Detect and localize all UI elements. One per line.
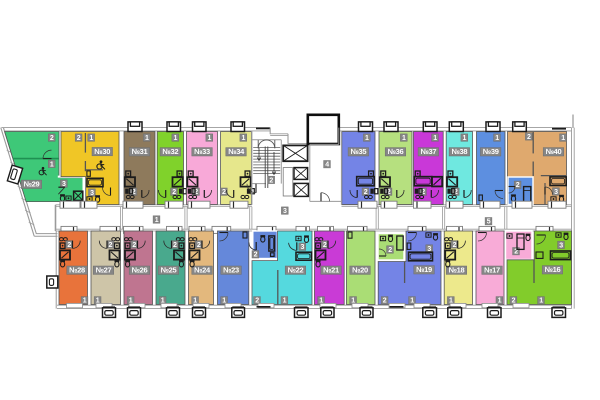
svg-text:№18: №18 (449, 266, 465, 275)
svg-text:1: 1 (402, 135, 406, 142)
svg-text:№39: №39 (483, 147, 499, 156)
svg-text:2: 2 (222, 189, 226, 196)
svg-text:2: 2 (383, 298, 387, 305)
svg-text:3: 3 (554, 189, 558, 196)
svg-text:1: 1 (155, 217, 159, 224)
svg-text:2: 2 (516, 182, 520, 189)
svg-text:2: 2 (109, 242, 113, 249)
svg-text:№22: №22 (288, 266, 304, 275)
svg-text:3: 3 (301, 244, 305, 251)
svg-text:1: 1 (283, 298, 287, 305)
svg-text:1: 1 (463, 135, 467, 142)
svg-text:1: 1 (174, 135, 178, 142)
svg-text:2: 2 (254, 252, 258, 259)
svg-text:№29: №29 (24, 180, 40, 189)
svg-text:№31: №31 (132, 147, 148, 156)
svg-text:2: 2 (173, 242, 177, 249)
svg-text:№17: №17 (484, 266, 500, 275)
svg-text:№40: №40 (546, 147, 562, 156)
svg-text:2: 2 (388, 247, 392, 254)
svg-text:1: 1 (50, 161, 54, 168)
svg-text:2: 2 (269, 177, 273, 184)
svg-text:№24: №24 (194, 266, 211, 275)
svg-text:№33: №33 (194, 147, 210, 156)
svg-text:1: 1 (539, 298, 543, 305)
svg-text:1: 1 (433, 135, 437, 142)
svg-text:5: 5 (487, 219, 491, 226)
svg-text:№21: №21 (323, 266, 339, 275)
svg-text:№16: №16 (545, 265, 561, 274)
svg-text:2: 2 (323, 242, 327, 249)
svg-text:3: 3 (283, 208, 287, 215)
svg-text:1: 1 (495, 135, 499, 142)
svg-text:2: 2 (197, 242, 201, 249)
svg-text:1: 1 (561, 135, 565, 142)
svg-text:2: 2 (77, 135, 81, 142)
svg-text:№23: №23 (223, 266, 239, 275)
svg-text:№26: №26 (132, 266, 148, 275)
svg-text:№19: №19 (416, 265, 432, 274)
svg-text:2: 2 (50, 135, 54, 142)
svg-text:№25: №25 (161, 266, 177, 275)
svg-text:1: 1 (242, 135, 246, 142)
svg-text:№20: №20 (352, 266, 368, 275)
svg-text:1: 1 (208, 135, 212, 142)
svg-text:2: 2 (67, 242, 71, 249)
svg-text:1: 1 (83, 298, 87, 305)
svg-text:4: 4 (325, 162, 329, 169)
svg-text:2: 2 (132, 242, 136, 249)
svg-text:№36: №36 (388, 147, 404, 156)
svg-text:2: 2 (453, 242, 457, 249)
svg-text:№34: №34 (228, 147, 245, 156)
svg-text:1: 1 (365, 135, 369, 142)
svg-text:№28: №28 (69, 266, 85, 275)
svg-text:1: 1 (89, 135, 93, 142)
svg-text:№32: №32 (162, 147, 178, 156)
svg-text:№27: №27 (96, 266, 112, 275)
svg-text:№30: №30 (94, 147, 110, 156)
svg-text:2: 2 (527, 134, 531, 141)
svg-text:3: 3 (90, 190, 94, 197)
svg-text:№35: №35 (350, 147, 366, 156)
svg-text:№37: №37 (420, 147, 436, 156)
svg-text:3: 3 (559, 242, 563, 249)
svg-text:1: 1 (145, 135, 149, 142)
svg-text:№38: №38 (451, 147, 467, 156)
